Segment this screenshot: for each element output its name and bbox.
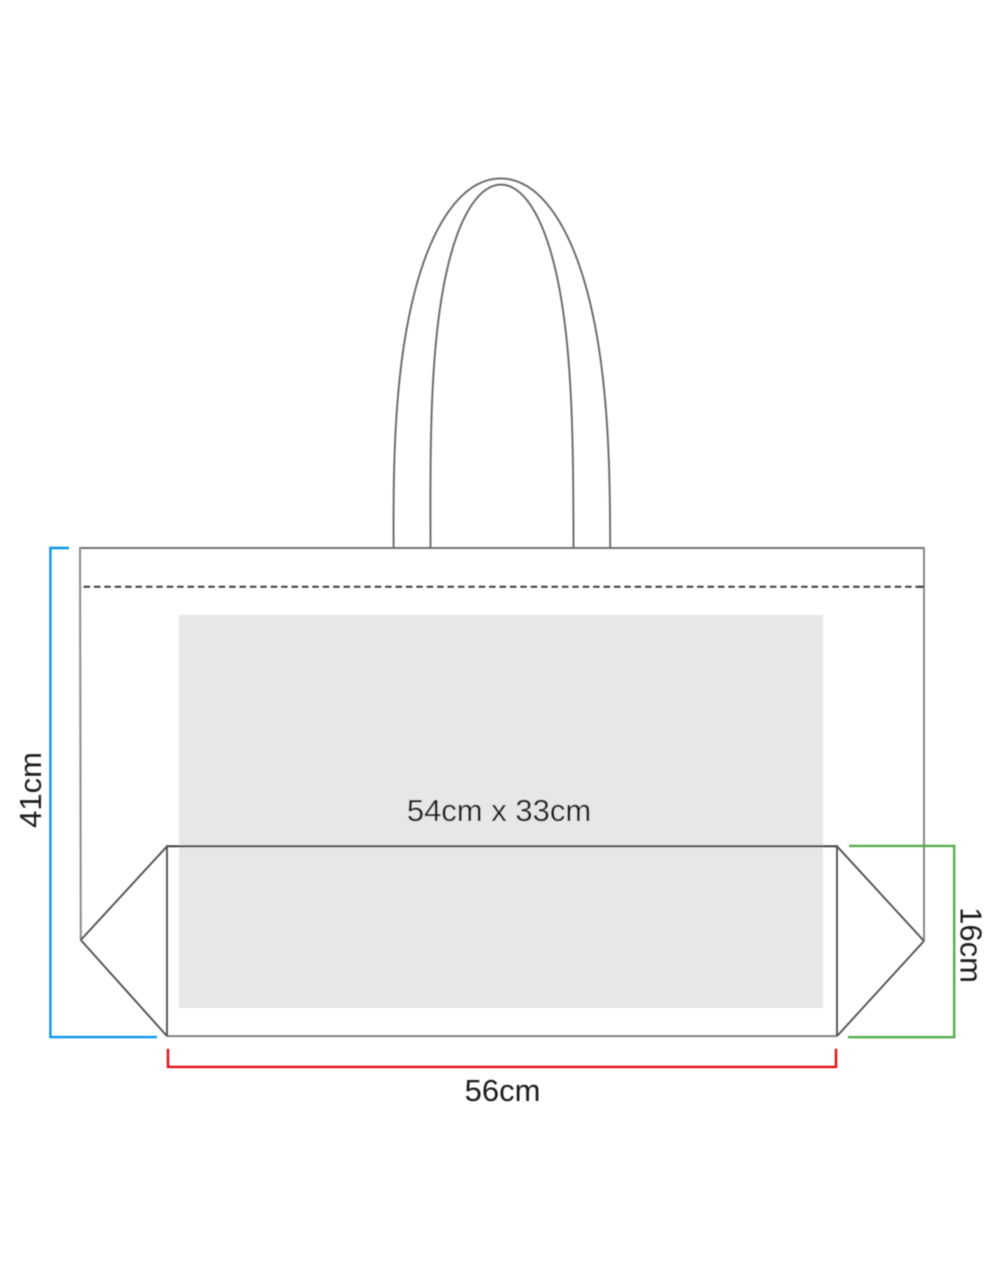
svg-text:41cm: 41cm bbox=[13, 752, 48, 828]
svg-text:56cm: 56cm bbox=[465, 1073, 541, 1108]
svg-text:54cm x 33cm: 54cm x 33cm bbox=[407, 793, 591, 828]
svg-text:16cm: 16cm bbox=[954, 907, 989, 983]
